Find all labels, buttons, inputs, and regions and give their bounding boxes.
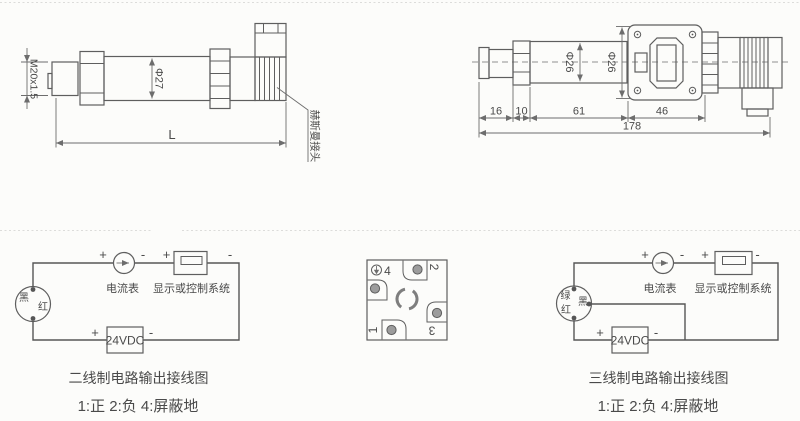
minus-sign: -: [149, 325, 153, 340]
display-system-box: [174, 252, 207, 275]
ammeter-label: 电流表: [644, 281, 677, 295]
display-side-button: [635, 53, 647, 72]
pin-3-label: 3: [428, 324, 435, 338]
circuit-wires: [33, 263, 239, 340]
length-dimensions: 16 10 61 46 178: [479, 80, 770, 138]
pin-socket-top: [403, 261, 427, 280]
connector-callout: 赫斯曼接头: [277, 88, 322, 163]
pin-socket-bottom: [382, 320, 406, 339]
connector-callout-label: 赫斯曼接头: [309, 110, 322, 163]
transmitter-plug-symbol: 黑 红: [16, 287, 51, 322]
plus-sign: +: [91, 325, 99, 340]
transmitter-outline: [48, 24, 286, 109]
black-wire-label: 黑: [19, 292, 29, 304]
dim-178-label: 178: [623, 121, 641, 133]
rear-connector-outline: [702, 32, 782, 116]
dim-61-label: 61: [573, 106, 585, 118]
red-wire-label: 红: [561, 303, 571, 316]
keyway-icon: [395, 288, 418, 310]
side-view-drawing: M20x1.5 Φ27 L 赫斯曼接头: [21, 24, 322, 163]
transmitter-plug-symbol: 绿 黑 红: [557, 286, 592, 321]
three-wire-caption: 三线制电路输出接线图: [589, 370, 729, 386]
two-wire-caption: 二线制电路输出接线图: [69, 370, 209, 386]
black-wire-label: 黑: [578, 296, 588, 308]
three-wire-pin-note: 1:正 2:负 4:屏蔽地: [598, 398, 719, 415]
plug-fins: [740, 38, 768, 89]
pin-4-label: 4: [384, 264, 391, 278]
angled-plug-body: [742, 88, 773, 109]
plus-sign: +: [701, 247, 709, 262]
plus-sign: +: [596, 325, 604, 340]
power-label: 24VDC: [611, 334, 650, 348]
length-L-label: L: [168, 127, 175, 142]
pin-1-label: 1: [366, 326, 380, 333]
power-supply-box: 24VDC: [611, 327, 650, 353]
display-system-box: [715, 252, 752, 275]
technical-diagram: M20x1.5 Φ27 L 赫斯曼接头: [0, 0, 800, 421]
minus-sign: -: [141, 247, 145, 262]
pin-socket-left: [368, 280, 387, 300]
power-label: 24VDC: [106, 334, 145, 348]
ammeter-symbol: [114, 253, 135, 274]
cable-gland-ribs: [260, 57, 280, 101]
ammeter-label: 电流表: [106, 281, 139, 295]
hirschmann-plug-top: [255, 24, 286, 58]
ammeter-symbol: [653, 253, 674, 274]
minus-sign: -: [228, 247, 232, 262]
diameter-26-housing-label: Φ26: [605, 51, 617, 72]
display-label: 显示或控制系统: [153, 281, 230, 295]
display-window: [657, 45, 676, 81]
dim-16-label: 16: [490, 106, 502, 118]
green-wire-label: 绿: [561, 289, 571, 302]
diameter-26-body-label: Φ26: [563, 51, 575, 72]
diameter-26-housing-dimension: Φ26: [605, 27, 630, 99]
red-wire-label: 红: [38, 300, 48, 313]
angled-plug-step: [747, 109, 768, 116]
thread-dimension: M20x1.5: [21, 48, 48, 109]
three-wire-circuit-diagram: 绿 黑 红 24VDC + - + - + - 电流表 显示或: [557, 247, 779, 415]
minus-sign: -: [654, 325, 658, 340]
dim-10-label: 10: [515, 106, 527, 118]
pin-2-label: 2: [427, 264, 441, 271]
thread-dim-label: M20x1.5: [28, 59, 40, 99]
plus-sign: +: [163, 247, 171, 262]
display-housing: [628, 25, 702, 100]
datasheet-page: M20x1.5 Φ27 L 赫斯曼接头: [0, 0, 800, 421]
ground-pin-icon: [372, 265, 382, 275]
connector-pinout-diagram: 4 2 1 3: [366, 260, 447, 340]
transmitter-outline-2: [479, 41, 627, 85]
front-view-drawing: Φ26 Φ26 16 10 61 46 178: [472, 25, 790, 138]
two-wire-circuit-diagram: 黑 红 24VDC + - + - + - 电流表 显示或控制系统 二线制电路输: [16, 247, 240, 415]
pin-socket-right: [427, 302, 446, 322]
minus-sign: -: [755, 247, 759, 262]
power-supply-box: 24VDC: [106, 327, 145, 353]
plus-sign: +: [99, 247, 107, 262]
diameter-27-label: Φ27: [153, 68, 165, 89]
dim-46-label: 46: [656, 106, 668, 118]
two-wire-pin-note: 1:正 2:负 4:屏蔽地: [78, 398, 199, 415]
display-label: 显示或控制系统: [695, 281, 772, 295]
minus-sign: -: [680, 247, 684, 262]
diameter-27-dimension: Φ27: [152, 59, 165, 99]
plus-sign: +: [641, 247, 649, 262]
